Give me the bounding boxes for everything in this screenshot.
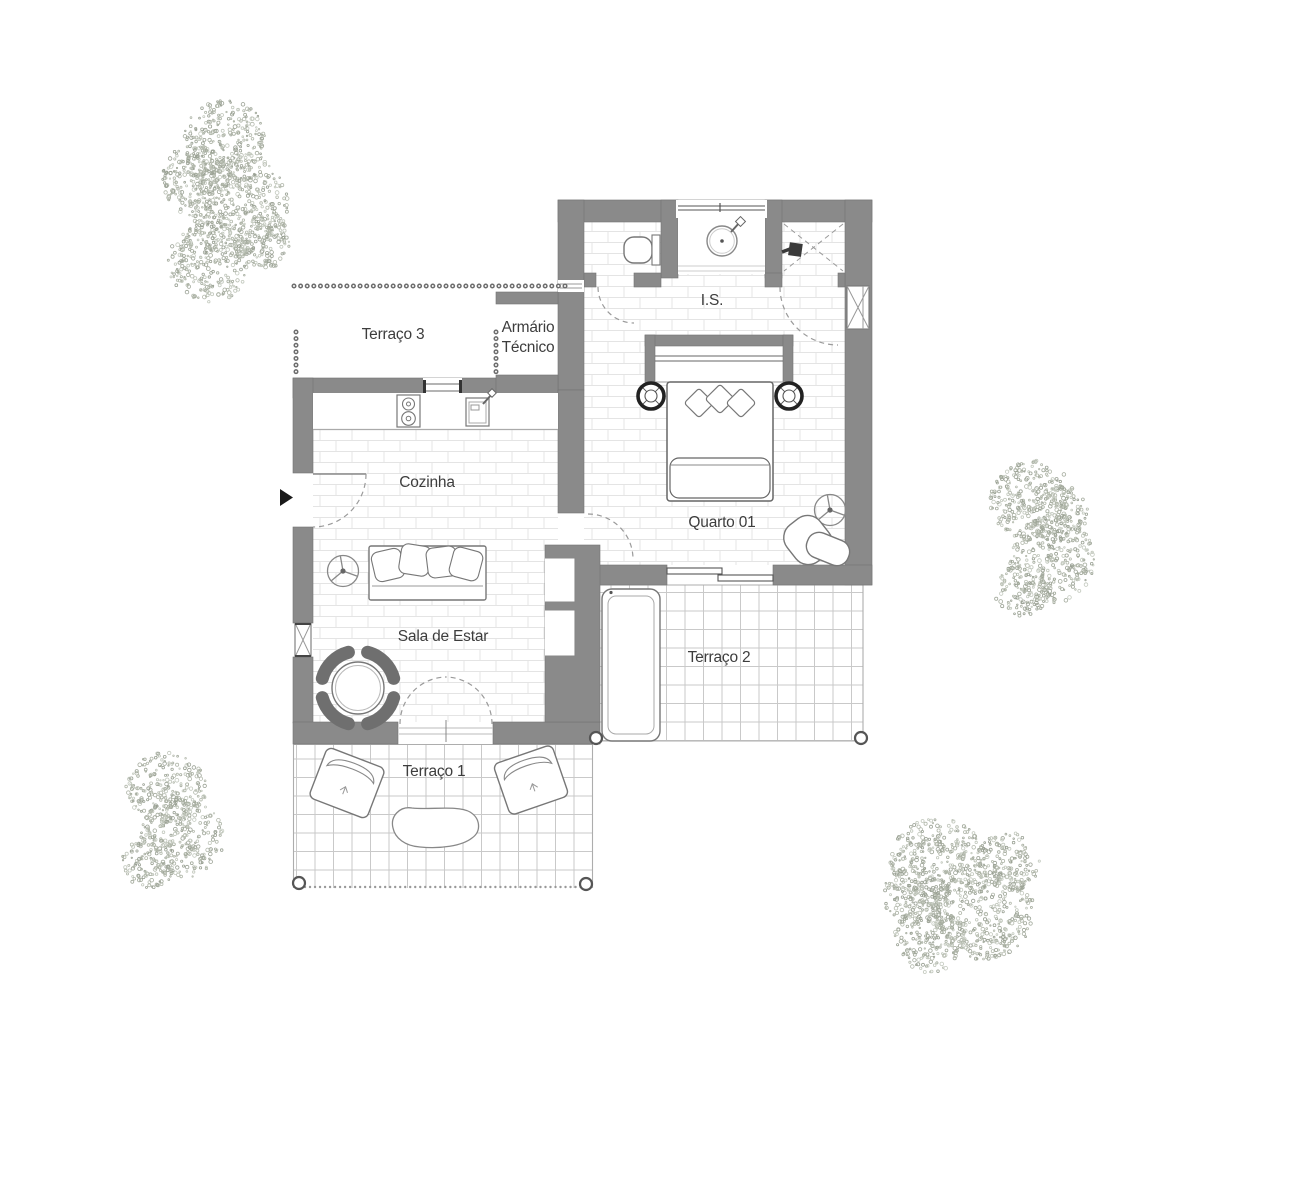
corner-post (580, 878, 592, 890)
dining-table (332, 662, 384, 714)
wall-stub (765, 273, 782, 287)
lounger (602, 589, 660, 741)
window-bedroom (847, 286, 869, 329)
wall-left-lower (293, 657, 313, 723)
coffee-table-blob (392, 808, 478, 848)
wall-left-upper (558, 200, 584, 390)
room-label-terraco-1: Terraço 1 (403, 763, 466, 780)
room-label-terraco-2: Terraço 2 (688, 649, 751, 666)
wall-divider-shower (765, 200, 782, 278)
tree-bottom-left (122, 751, 224, 888)
room-label-is: I.S. (701, 292, 723, 309)
tree-top-left (162, 100, 290, 303)
tree-bottom-right (884, 819, 1041, 974)
bedside-pouf-left (638, 383, 664, 409)
room-label-sala-de-estar: Sala de Estar (398, 628, 488, 645)
wall-stub (584, 273, 596, 287)
tree-right (989, 459, 1094, 617)
room-label-cozinha: Cozinha (399, 474, 455, 491)
wall-kitchen-bedroom (558, 390, 584, 513)
washbasin (678, 217, 765, 274)
wall-living-bottom-right (493, 722, 600, 744)
wardrobe (645, 335, 793, 382)
wall-niche-1 (545, 558, 575, 602)
floor-plan-svg: Terraço 3 Armário Técnico I.S. Cozinha Q… (0, 0, 1291, 1178)
window-vanity (676, 200, 767, 218)
corner-post (293, 877, 305, 889)
room-label-armario-line1: Armário (502, 319, 555, 336)
window-gap-corridor (558, 280, 584, 292)
room-label-terraco-3: Terraço 3 (362, 326, 425, 343)
wall-armario-top (496, 292, 558, 304)
wall-niche-2 (545, 610, 575, 656)
sliding-door (667, 568, 773, 581)
wall-divider-toilet (661, 200, 678, 278)
wall-left-entry-upper (293, 378, 313, 473)
dining-set (322, 652, 393, 723)
bedside-pouf-right (776, 383, 802, 409)
shower-head (788, 242, 803, 257)
bed (667, 382, 773, 501)
wall-stub (634, 273, 661, 287)
stove (397, 395, 420, 427)
wall-right (845, 200, 872, 585)
corner-post (590, 732, 602, 744)
room-label-armario-line2: Técnico (502, 339, 555, 356)
entrance-arrow (280, 489, 293, 506)
sofa (369, 543, 486, 600)
wall-left-mid (293, 527, 313, 623)
corner-post (855, 732, 867, 744)
room-label-quarto-01: Quarto 01 (688, 514, 755, 531)
floor-plan-page: Terraço 3 Armário Técnico I.S. Cozinha Q… (0, 0, 1291, 1178)
wall-bedroom-bottom-right (773, 565, 872, 585)
kitchen-counter (313, 389, 558, 430)
wall-stub (838, 273, 845, 287)
window-living (295, 623, 311, 657)
toilet (624, 235, 660, 265)
